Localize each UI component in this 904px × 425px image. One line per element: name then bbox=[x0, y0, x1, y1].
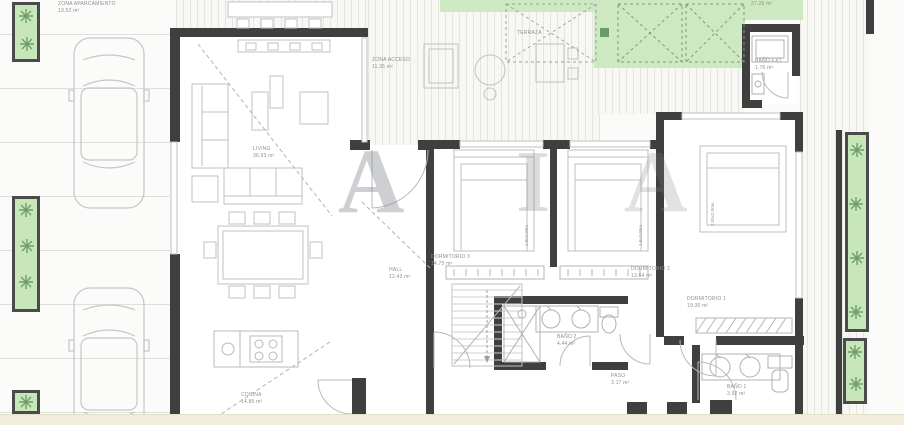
plant-icon bbox=[848, 345, 862, 359]
label-zona-acceso: ZONA ACCESO11.35 m² bbox=[372, 57, 410, 70]
label-zona-aparcamiento: ZONA APARCAMIENTO13.52 m² bbox=[58, 1, 116, 14]
floor-plan-canvas: ZONA APARCAMIENTO13.52 m² ZONA ACCESO11.… bbox=[0, 0, 904, 425]
plant-icon bbox=[850, 143, 864, 157]
plant-icon bbox=[849, 197, 863, 211]
car-2 bbox=[69, 288, 149, 425]
label-dormitorio-3: DORMITORIO 314.75 m² bbox=[431, 254, 470, 267]
plant-icon bbox=[850, 251, 864, 265]
bottom-page-band bbox=[0, 414, 904, 425]
label-hall: HALL12.42 m² bbox=[389, 267, 410, 280]
plant-icon bbox=[20, 37, 34, 51]
kitchen-island bbox=[214, 331, 298, 367]
outdoor-kitchen bbox=[228, 2, 332, 28]
label-terraza-area: 37.26 m² bbox=[751, 1, 772, 8]
label-cocina: COCINA14.85 m² bbox=[241, 392, 262, 405]
plant-icon bbox=[19, 275, 33, 289]
label-bed-dim-dorm1: 2.00x2.00m bbox=[710, 202, 715, 226]
plant-icon bbox=[19, 395, 33, 409]
watermark-letter: A bbox=[624, 132, 688, 233]
label-dormitorio-1: DORMITORIO 119.30 m² bbox=[687, 296, 726, 309]
watermark-letter: A bbox=[338, 128, 404, 234]
plant-icon bbox=[849, 377, 863, 391]
plant-icon bbox=[20, 239, 34, 253]
label-living: LIVING36.93 m² bbox=[253, 146, 274, 159]
plant-icon bbox=[19, 9, 33, 23]
plant-icon bbox=[849, 305, 863, 319]
label-bano-1: BAÑO 13.92 m² bbox=[727, 384, 747, 397]
label-bano-ext: BAÑO EXT1.76 m² bbox=[755, 58, 782, 71]
car-1 bbox=[69, 38, 149, 208]
entrance-furniture bbox=[424, 44, 578, 100]
label-paso: PASO3.17 m² bbox=[611, 373, 629, 386]
label-dormitorio-2: DORMITORIO 213.64 m² bbox=[631, 266, 670, 279]
watermark-letter: I bbox=[516, 132, 550, 233]
label-terraza: TERRAZA bbox=[517, 30, 542, 37]
label-bano-2: BAÑO 24.44 m² bbox=[557, 334, 577, 347]
plant-icon bbox=[19, 203, 33, 217]
